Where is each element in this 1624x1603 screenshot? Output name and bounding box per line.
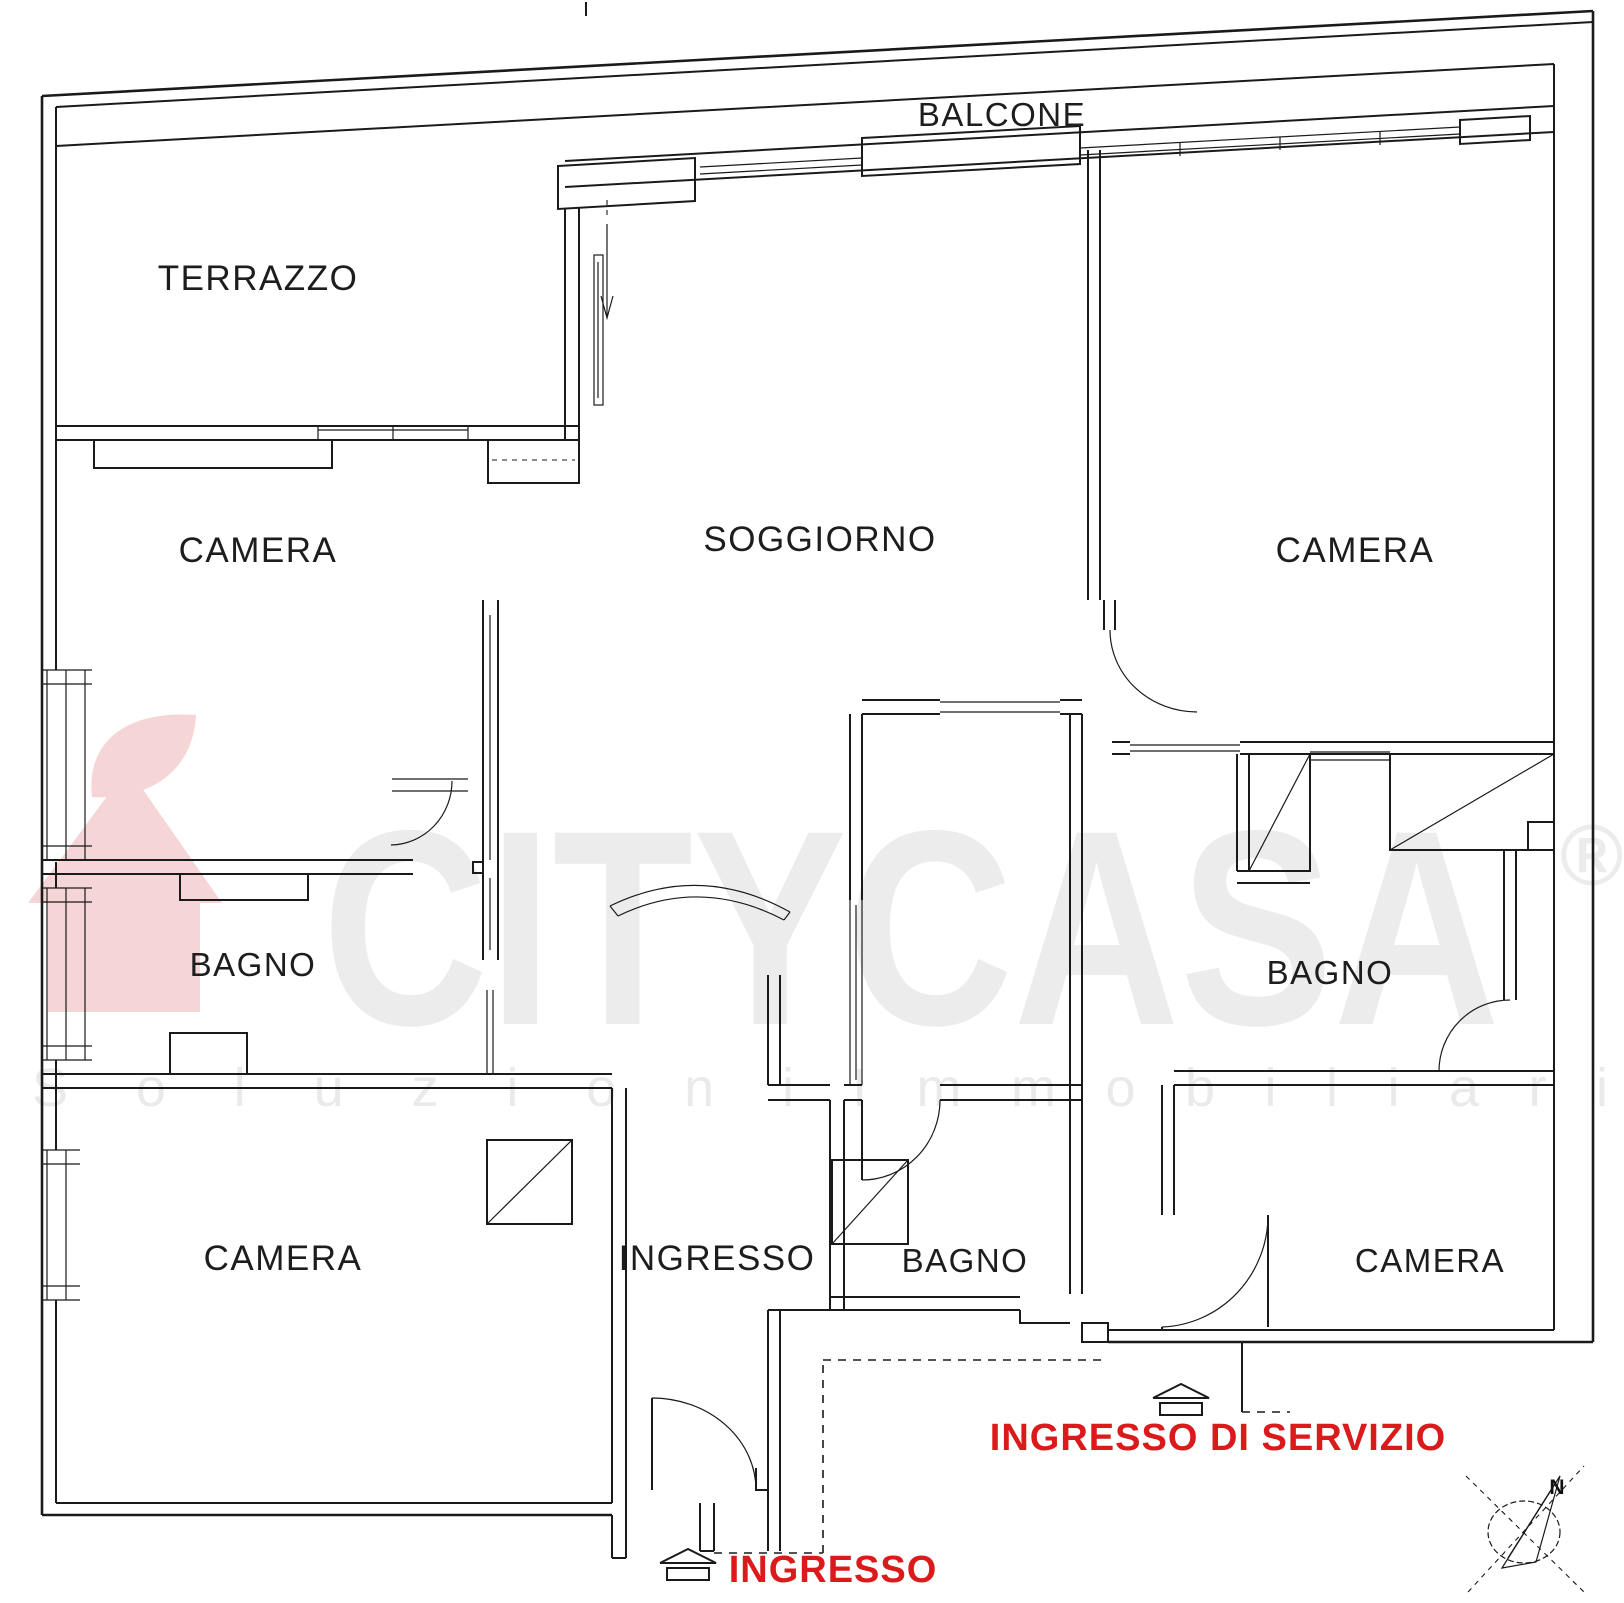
main-entrance-door-arc-icon — [652, 1398, 756, 1490]
outer-walls — [42, 11, 1593, 1515]
entrance-door-symbol-icon — [660, 1549, 716, 1580]
room-label-bagno-est: BAGNO — [1267, 954, 1394, 991]
window-icon — [42, 670, 92, 860]
room-labels: BALCONE TERRAZZO CAMERA SOGGIORNO CAMERA… — [158, 96, 1505, 1279]
wardrobe-icon — [487, 1140, 572, 1224]
entrance-label-ingresso-di-servizio: INGRESSO DI SERVIZIO — [990, 1417, 1446, 1459]
floorplan-page: CITYCASA ® Soluzioni Immobiliari — [0, 0, 1624, 1603]
service-door-symbol-icon — [1153, 1384, 1209, 1415]
room-label-camera-sud-ovest: CAMERA — [204, 1239, 363, 1278]
room-label-camera-nord-est: CAMERA — [1276, 531, 1435, 570]
compass-icon: N — [1466, 1466, 1586, 1594]
room-label-ingresso: INGRESSO — [619, 1239, 816, 1278]
terrazzo-walls — [56, 208, 579, 483]
watermark-registered-mark: ® — [1560, 808, 1623, 904]
balcony-structure — [42, 2, 1593, 405]
citycasa-watermark: CITYCASA ® Soluzioni Immobiliari — [28, 715, 1623, 1118]
window-icon — [42, 1150, 80, 1300]
room-label-camera-nord-ovest: CAMERA — [179, 531, 338, 570]
compass-north-label: N — [1549, 1476, 1564, 1499]
room-label-bagno-sud: BAGNO — [902, 1242, 1029, 1279]
logo-body-shape — [48, 898, 200, 1012]
entrance-annotations: INGRESSO INGRESSO DI SERVIZIO — [660, 1384, 1446, 1591]
room-label-bagno-ovest: BAGNO — [190, 946, 317, 983]
room-label-camera-sud-est: CAMERA — [1355, 1242, 1505, 1279]
logo-leaf-shape — [91, 715, 196, 798]
room-label-terrazzo: TERRAZZO — [158, 259, 359, 298]
door-arc-icon — [1110, 630, 1197, 712]
floorplan-drawing: CITYCASA ® Soluzioni Immobiliari — [0, 0, 1624, 1603]
room-label-balcone: BALCONE — [918, 96, 1086, 133]
door-arc-icon — [1162, 1215, 1268, 1327]
entrance-label-ingresso: INGRESSO — [729, 1549, 938, 1591]
room-label-soggiorno: SOGGIORNO — [703, 520, 936, 559]
logo-roof-shape — [28, 768, 222, 903]
